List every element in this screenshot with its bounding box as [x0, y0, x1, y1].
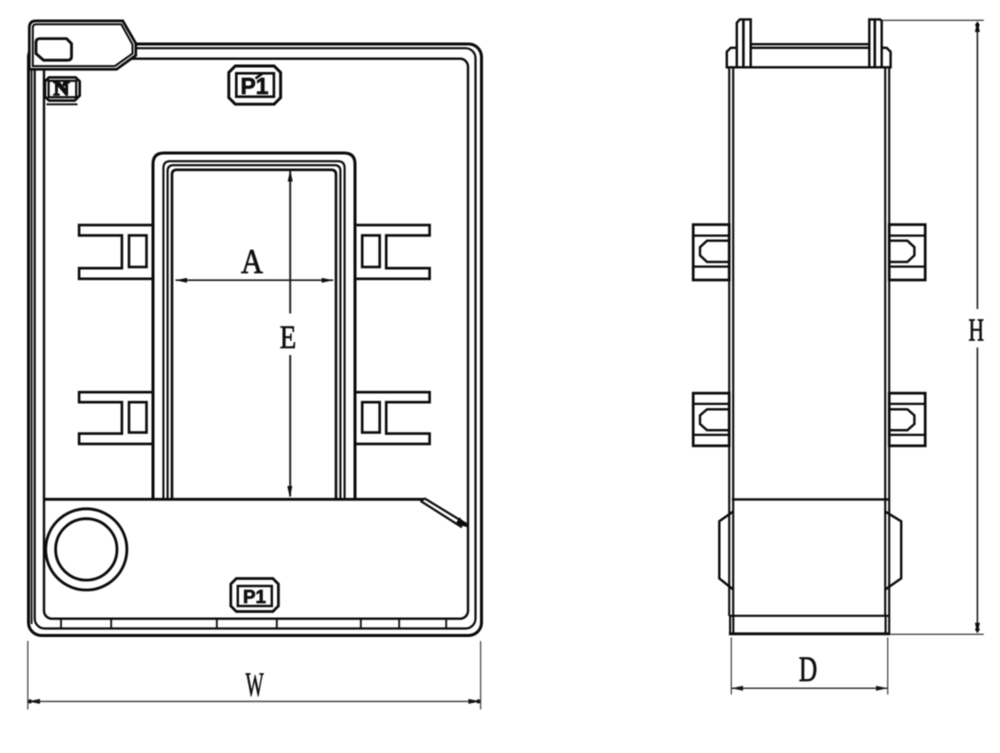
svg-text:E: E [280, 320, 297, 356]
svg-text:H: H [969, 312, 985, 348]
svg-text:P1: P1 [241, 73, 269, 99]
svg-text:N: N [54, 78, 71, 100]
svg-text:P1: P1 [243, 587, 266, 607]
svg-text:W: W [246, 667, 265, 704]
svg-text:A: A [241, 242, 264, 281]
svg-text:D: D [799, 649, 818, 689]
